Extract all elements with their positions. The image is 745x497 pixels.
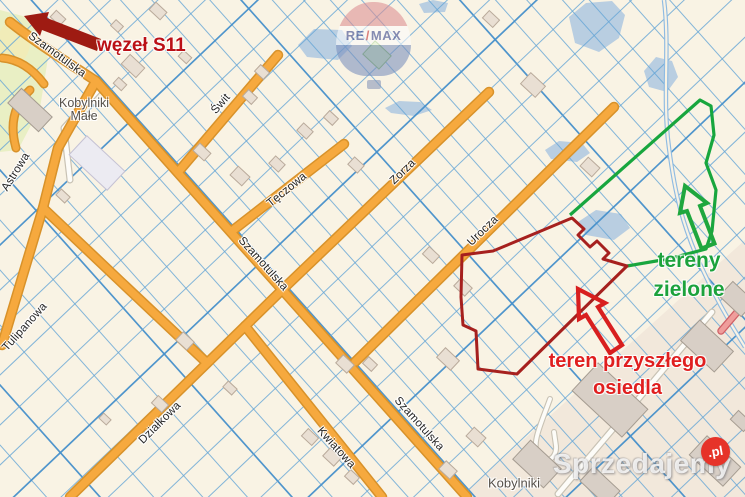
building (297, 123, 313, 139)
place-label: Kobylniki (488, 477, 540, 490)
building (437, 348, 460, 370)
building (223, 381, 237, 395)
place-label: KobylnikiMałe (59, 97, 109, 123)
green-area-annotation: tereny zielone (628, 246, 745, 304)
building (454, 278, 472, 296)
remax-balloon-icon: RE/MAX (336, 2, 411, 76)
streets (2, 22, 614, 497)
building (324, 111, 339, 126)
building (149, 2, 167, 20)
estate-annotation-line1: teren przyszłego (527, 348, 728, 375)
remax-text: RE (346, 28, 365, 43)
estate-arrow-icon (578, 289, 622, 353)
parking-area (69, 136, 125, 190)
building (230, 166, 250, 186)
green-area-annotation-line2: zielone (628, 275, 745, 304)
estate-annotation: teren przyszłego osiedla (527, 348, 728, 402)
building (422, 247, 439, 264)
junction-annotation: węzeł S11 (97, 35, 186, 57)
balloon-basket-icon (367, 80, 381, 89)
building (113, 77, 127, 90)
building (521, 73, 546, 98)
remax-watermark: RE/MAX (336, 2, 411, 94)
building (269, 156, 285, 172)
building (580, 157, 600, 177)
building (111, 20, 124, 33)
remax-text: MAX (371, 28, 401, 43)
green-area-annotation-line1: tereny (628, 246, 745, 275)
building (482, 11, 499, 28)
map-canvas: SzamotulskaSzamotulskaSzamotulskaŚwitTęc… (0, 0, 745, 497)
estate-annotation-line2: osiedla (527, 375, 728, 402)
